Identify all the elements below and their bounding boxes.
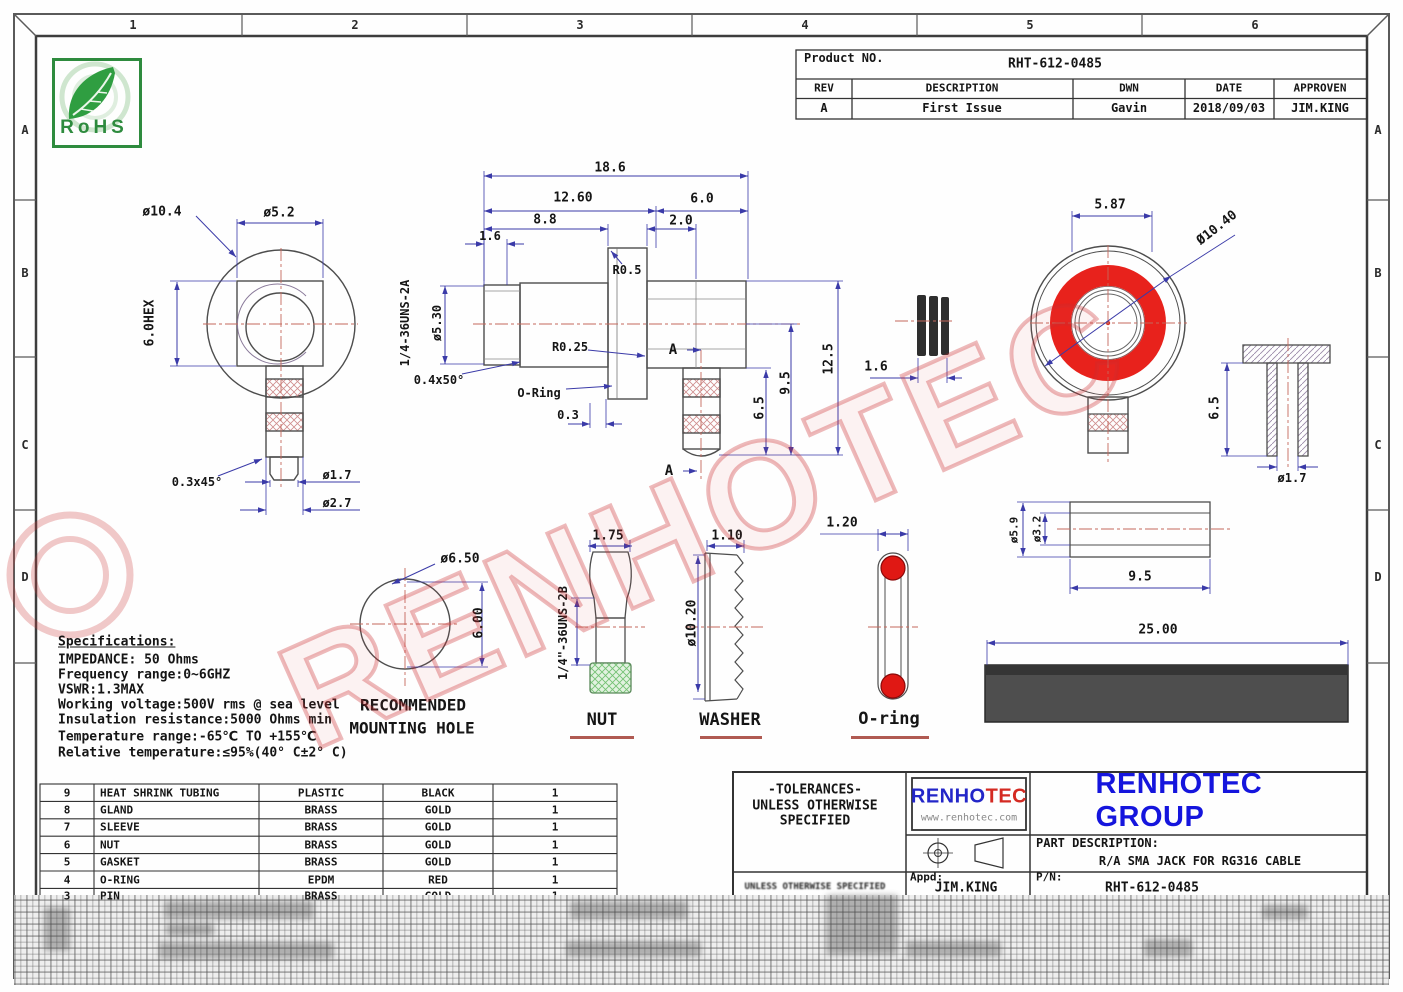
zone-col-6: 6 xyxy=(1251,18,1258,32)
dim-oring-cs: 1.20 xyxy=(826,516,857,531)
dim-thread-dia: ø5.30 xyxy=(430,305,444,341)
dim-hole-dia: ø6.50 xyxy=(440,552,479,567)
mosaic-blob xyxy=(1262,905,1308,919)
spec-humidity: Relative temperature:≤95%(40° C±2° C) xyxy=(58,746,348,761)
mounting-hole-caption-1: RECOMMENDED xyxy=(360,696,466,715)
dim-len-groove: 0.3 xyxy=(557,408,579,422)
drawing-sheet: RoHS 1 2 3 4 5 6 1 2 3 4 5 6 A B C D A B… xyxy=(0,0,1403,992)
dim-len-body: 8.8 xyxy=(533,213,556,228)
section-mark-bottom: A xyxy=(665,463,673,479)
part-row-no: 4 xyxy=(64,874,71,887)
part-row-qty: 1 xyxy=(552,874,559,887)
dim-pin-height: 6.5 xyxy=(1208,396,1223,419)
pn-label: P/N: xyxy=(1036,871,1063,884)
section-mark-top: A xyxy=(669,342,677,358)
tolerances-line-2: UNLESS OTHERWISE xyxy=(752,799,877,814)
dim-washer-width: 1.10 xyxy=(711,529,742,544)
part-row-qty: 1 xyxy=(552,804,559,817)
dim-chamfer2: 0.4x50° xyxy=(414,373,465,387)
dim-len-step: 1.6 xyxy=(479,229,501,243)
dim-radius-groove: R0.25 xyxy=(552,340,588,354)
dim-radius-flange: R0.5 xyxy=(613,263,642,277)
dim-sleeve-id: ø3.2 xyxy=(1031,516,1044,543)
part-row-name: SLEEVE xyxy=(100,821,140,834)
zone-row-a2: A xyxy=(1374,123,1381,137)
dim-len-rear: 6.0 xyxy=(690,192,713,207)
part-row-qty: 1 xyxy=(552,856,559,869)
mosaic-blob xyxy=(906,941,1001,957)
zone-row-d: D xyxy=(21,570,28,584)
zone-row-b: B xyxy=(21,266,28,280)
dim-len-front: 12.60 xyxy=(553,191,592,206)
part-row-qty: 1 xyxy=(552,787,559,800)
dim-len-mid: 9.5 xyxy=(779,371,794,394)
spec-vswr: VSWR:1.3MAX xyxy=(58,683,144,698)
part-row-material: BRASS xyxy=(304,890,337,903)
part-row-material: PLASTIC xyxy=(298,787,344,800)
part-row-material: BRASS xyxy=(304,804,337,817)
dim-across-flats: 5.87 xyxy=(1094,198,1125,213)
part-row-color: GOLD xyxy=(425,821,452,834)
part-row-name: O-RING xyxy=(100,874,140,887)
dim-tip-dia: ø1.7 xyxy=(323,468,352,482)
part-row-name: NUT xyxy=(100,839,120,852)
dim-len-total: 18.6 xyxy=(594,161,625,176)
mosaic-blob xyxy=(1144,939,1192,957)
part-row-no: 3 xyxy=(64,890,71,903)
company-name: RENHOTEC GROUP xyxy=(1096,768,1301,834)
dim-pin-dia: ø1.7 xyxy=(1278,471,1307,485)
part-row-material: BRASS xyxy=(304,856,337,869)
dim-body-dia: ø10.4 xyxy=(142,205,181,220)
part-row-no: 7 xyxy=(64,821,71,834)
mosaic-blob xyxy=(159,942,334,959)
dim-nut-width: 1.75 xyxy=(592,529,623,544)
dim-len-flange: 2.0 xyxy=(669,214,692,229)
product-no-value: RHT-612-0485 xyxy=(1008,57,1102,72)
tolerances-line-1: -TOLERANCES- xyxy=(768,783,862,798)
spec-insulation: Insulation resistance:5000 Ohms min xyxy=(58,713,332,728)
zone-col-3: 3 xyxy=(576,18,583,32)
rev-value: A xyxy=(820,101,827,115)
dim-sleeve-od: ø5.9 xyxy=(1008,517,1021,544)
date-value: 2018/09/03 xyxy=(1193,101,1265,115)
spec-voltage: Working voltage:500V rms @ sea level xyxy=(58,698,340,713)
part-row-color: GOLD xyxy=(425,856,452,869)
part-row-no: 6 xyxy=(64,839,71,852)
part-row-material: EPDM xyxy=(308,874,335,887)
mosaic-blob xyxy=(166,923,214,936)
part-row-name: PIN xyxy=(100,890,120,903)
part-row-no: 5 xyxy=(64,856,71,869)
logo-text-blue: RENHO xyxy=(911,786,986,808)
spec-frequency: Frequency range:0~6GHZ xyxy=(58,668,230,683)
part-desc-value: R/A SMA JACK FOR RG316 CABLE xyxy=(1099,854,1301,868)
part-row-material: BRASS xyxy=(304,821,337,834)
spec-temperature: Temperature range:-65℃ TO +155℃ xyxy=(58,730,316,745)
dwn-value: Gavin xyxy=(1111,101,1147,115)
date-header: DATE xyxy=(1216,82,1243,95)
dim-gasket-width: 1.6 xyxy=(864,360,887,375)
dim-thread-spec: 1/4-36UNS-2A xyxy=(398,280,412,367)
specs-title: Specifications: xyxy=(58,635,175,650)
approven-value: JIM.KING xyxy=(1291,101,1349,115)
dim-nut-thread: 1/4"-36UNS-2B xyxy=(556,586,570,680)
dim-hole-height: 6.00 xyxy=(472,607,487,638)
mosaic-blob xyxy=(44,907,70,951)
mosaic-blob xyxy=(164,901,314,919)
part-row-qty: 1 xyxy=(552,821,559,834)
dim-chamfer1: 0.3x45° xyxy=(172,475,223,489)
part-row-color: RED xyxy=(428,874,448,887)
zone-row-c2: C xyxy=(1374,438,1381,452)
spec-impedance: IMPEDANCE: 50 Ohms xyxy=(58,653,199,668)
zone-row-a: A xyxy=(21,123,28,137)
mounting-hole-caption-2: MOUNTING HOLE xyxy=(349,719,474,738)
part-row-color: GOLD xyxy=(425,804,452,817)
part-row-color: BLACK xyxy=(421,787,454,800)
description-value: First Issue xyxy=(922,101,1001,115)
logo-text-red: TEC xyxy=(986,786,1028,808)
part-row-qty: 1 xyxy=(552,839,559,852)
mosaic-blob xyxy=(566,941,701,957)
drawing-canvas xyxy=(0,0,1403,992)
zone-col-4: 4 xyxy=(801,18,808,32)
dim-sleeve-length: 9.5 xyxy=(1128,570,1151,585)
part-row-no: 8 xyxy=(64,804,71,817)
renhotec-logo: RENHOTEC xyxy=(911,786,1027,809)
nut-caption: NUT xyxy=(587,710,618,730)
zone-row-c: C xyxy=(21,438,28,452)
zone-row-d2: D xyxy=(1374,570,1381,584)
dim-stem-dia: ø2.7 xyxy=(323,496,352,510)
part-row-name: GLAND xyxy=(100,804,133,817)
dim-len-stem: 6.5 xyxy=(753,396,768,419)
oring-caption: O-ring xyxy=(858,709,919,729)
dim-hex: 6.0HEX xyxy=(143,300,158,347)
part-desc-label: PART DESCRIPTION: xyxy=(1036,836,1159,850)
description-header: DESCRIPTION xyxy=(926,82,999,95)
dim-len-overall: 12.5 xyxy=(822,343,837,374)
dim-tubing-length: 25.00 xyxy=(1138,623,1177,638)
pn-value: RHT-612-0485 xyxy=(1105,881,1199,896)
tolerances-line-3: SPECIFIED xyxy=(780,814,850,829)
approven-header: APPROVEN xyxy=(1294,82,1347,95)
dwn-header: DWN xyxy=(1119,82,1139,95)
part-row-material: BRASS xyxy=(304,839,337,852)
rohs-text: RoHS xyxy=(60,117,128,139)
zone-row-b2: B xyxy=(1374,266,1381,280)
rev-header: REV xyxy=(814,82,834,95)
oring-callout: O-Ring xyxy=(517,386,560,400)
zone-col-1: 1 xyxy=(129,18,136,32)
mosaic-blob xyxy=(570,901,688,919)
censored-mosaic-strip xyxy=(14,895,1389,985)
part-row-color: GOLD xyxy=(425,839,452,852)
logo-url: www.renhotec.com xyxy=(921,813,1017,824)
washer-caption: WASHER xyxy=(699,710,760,730)
product-no-label: Product NO. xyxy=(804,51,883,65)
part-row-no: 9 xyxy=(64,787,71,800)
zone-col-2: 2 xyxy=(351,18,358,32)
dim-washer-dia: ø10.20 xyxy=(685,600,700,647)
mosaic-blob xyxy=(826,895,898,955)
tolerances-small-note: UNLESS OTHERWISE SPECIFIED xyxy=(745,882,886,892)
appd-value: JIM.KING xyxy=(935,881,998,896)
part-row-name: GASKET xyxy=(100,856,140,869)
dim-square-dia: ø5.2 xyxy=(263,206,294,221)
zone-col-5: 5 xyxy=(1026,18,1033,32)
part-row-name: HEAT SHRINK TUBING xyxy=(100,787,219,800)
